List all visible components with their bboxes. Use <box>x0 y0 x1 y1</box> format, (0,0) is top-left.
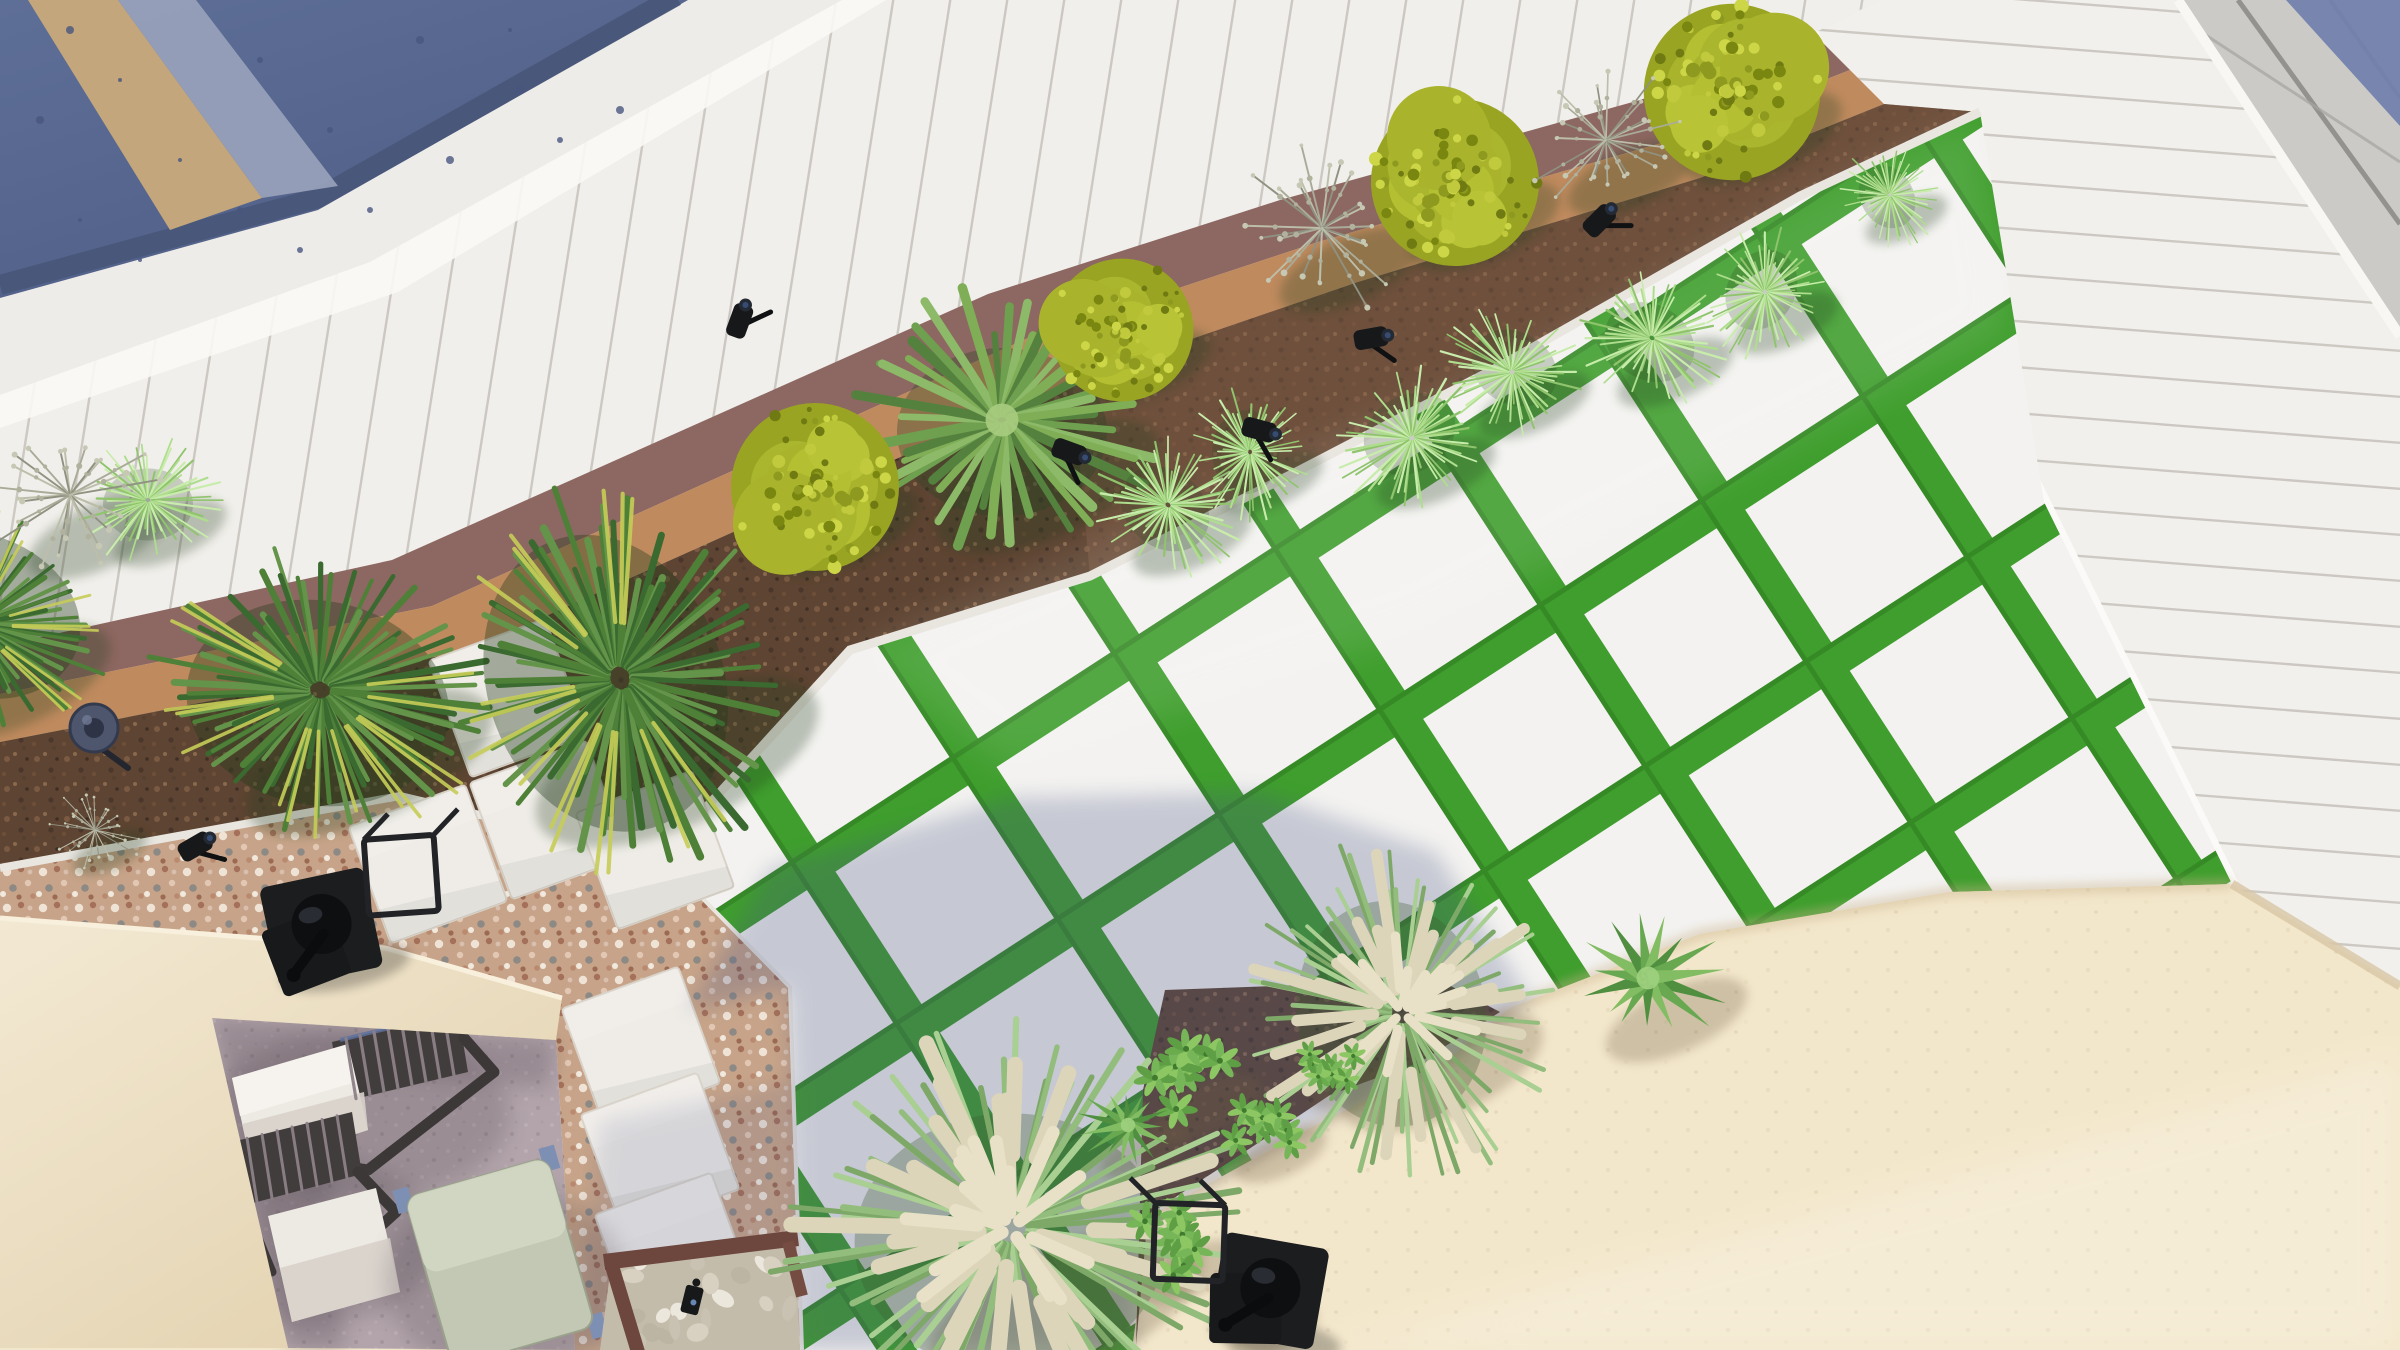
planter-box <box>600 1236 802 1350</box>
backyard-render <box>0 0 2400 1350</box>
